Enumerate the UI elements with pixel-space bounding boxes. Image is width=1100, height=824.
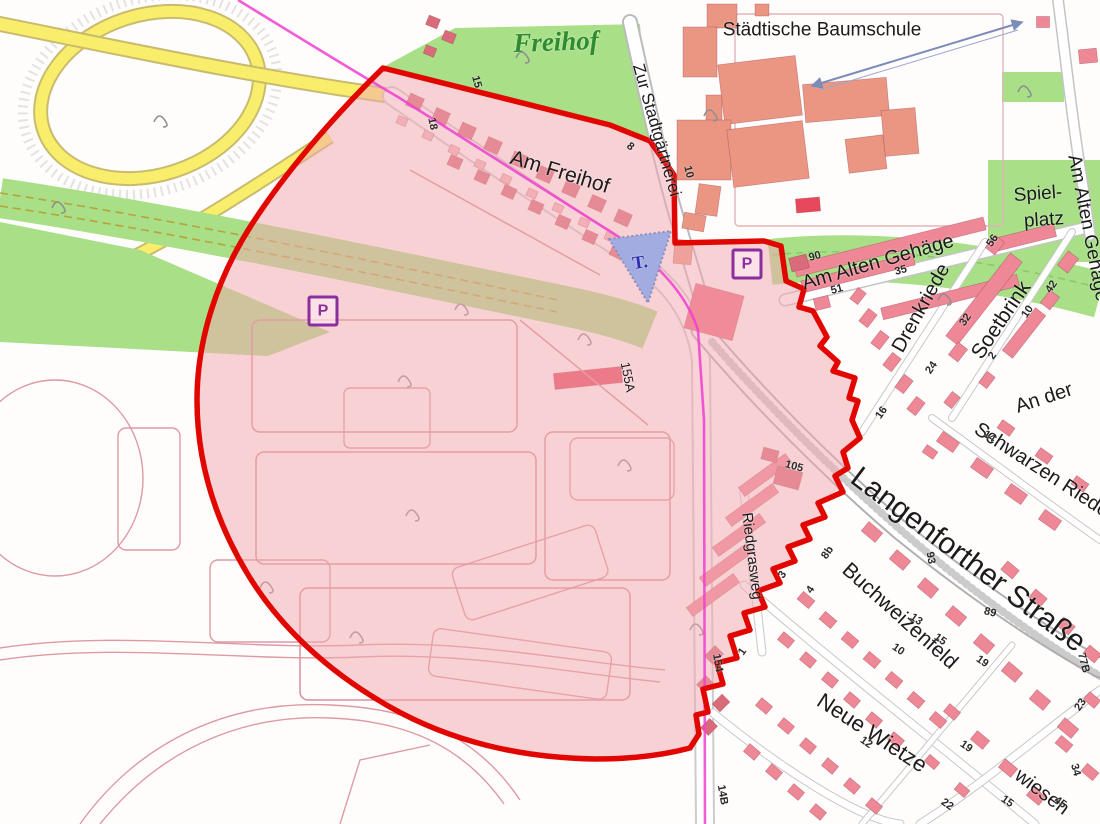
map-viewport[interactable]: FreihofStädtische BaumschuleSpiel-platzZ… bbox=[0, 0, 1100, 824]
building bbox=[795, 197, 820, 213]
building bbox=[1078, 48, 1097, 64]
building bbox=[845, 135, 887, 173]
building bbox=[677, 120, 731, 180]
building bbox=[695, 184, 721, 217]
building bbox=[682, 212, 706, 232]
building bbox=[881, 108, 919, 157]
building bbox=[718, 55, 803, 124]
building bbox=[803, 77, 890, 122]
building bbox=[707, 4, 737, 28]
building bbox=[683, 27, 717, 77]
building bbox=[1037, 17, 1050, 28]
map-canvas bbox=[0, 0, 1100, 824]
building bbox=[755, 4, 769, 16]
building bbox=[727, 121, 810, 188]
